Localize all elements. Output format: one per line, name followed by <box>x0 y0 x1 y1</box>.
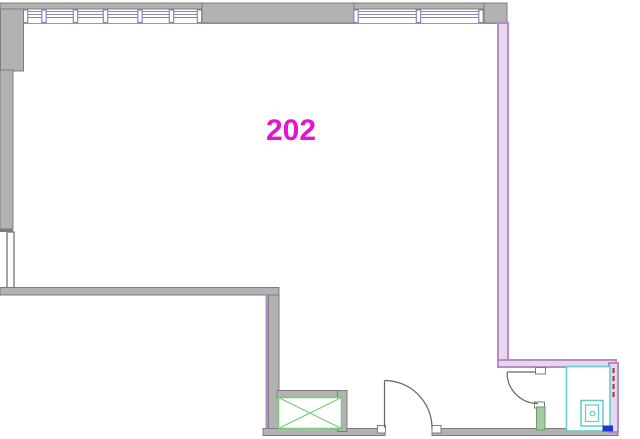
corner-block-top-left <box>1 9 24 71</box>
threshold-fixture-blue <box>603 426 614 432</box>
window-mullion <box>73 10 77 23</box>
room-number-label: 202 <box>266 114 316 147</box>
shower-pan-outer <box>581 401 603 427</box>
bathroom-door-jamb-top <box>536 368 546 375</box>
floor-plan-canvas: 202 <box>0 0 640 439</box>
corner-block-top-right <box>484 3 507 23</box>
wall-segment-top-middle <box>202 3 354 23</box>
window-mullion <box>354 10 358 23</box>
south-wall-left <box>263 429 385 436</box>
window-mullion <box>138 10 142 23</box>
window-mullion <box>197 10 201 23</box>
bathroom-partition-green <box>537 407 546 430</box>
window-band-north-east <box>354 10 484 23</box>
entry-door-swing-arc <box>385 381 433 429</box>
west-exterior-wall <box>0 70 13 229</box>
corridor-wall <box>269 295 280 429</box>
window-mullion <box>42 10 46 23</box>
west-thin-wall <box>7 232 14 288</box>
window-mullion <box>169 10 173 23</box>
east-demising-wall <box>498 23 508 361</box>
window-mullion <box>479 10 483 23</box>
shaft-top-wall <box>277 391 347 398</box>
floor-plan-drawing: 202 <box>0 0 640 439</box>
window-mullion <box>103 10 107 23</box>
window-mullion <box>416 10 420 23</box>
entry-door-jamb-right <box>432 426 441 434</box>
bathroom-door-swing-arc <box>507 373 538 404</box>
window-band-north-west <box>23 10 201 23</box>
southwest-interior-wall <box>0 288 279 296</box>
